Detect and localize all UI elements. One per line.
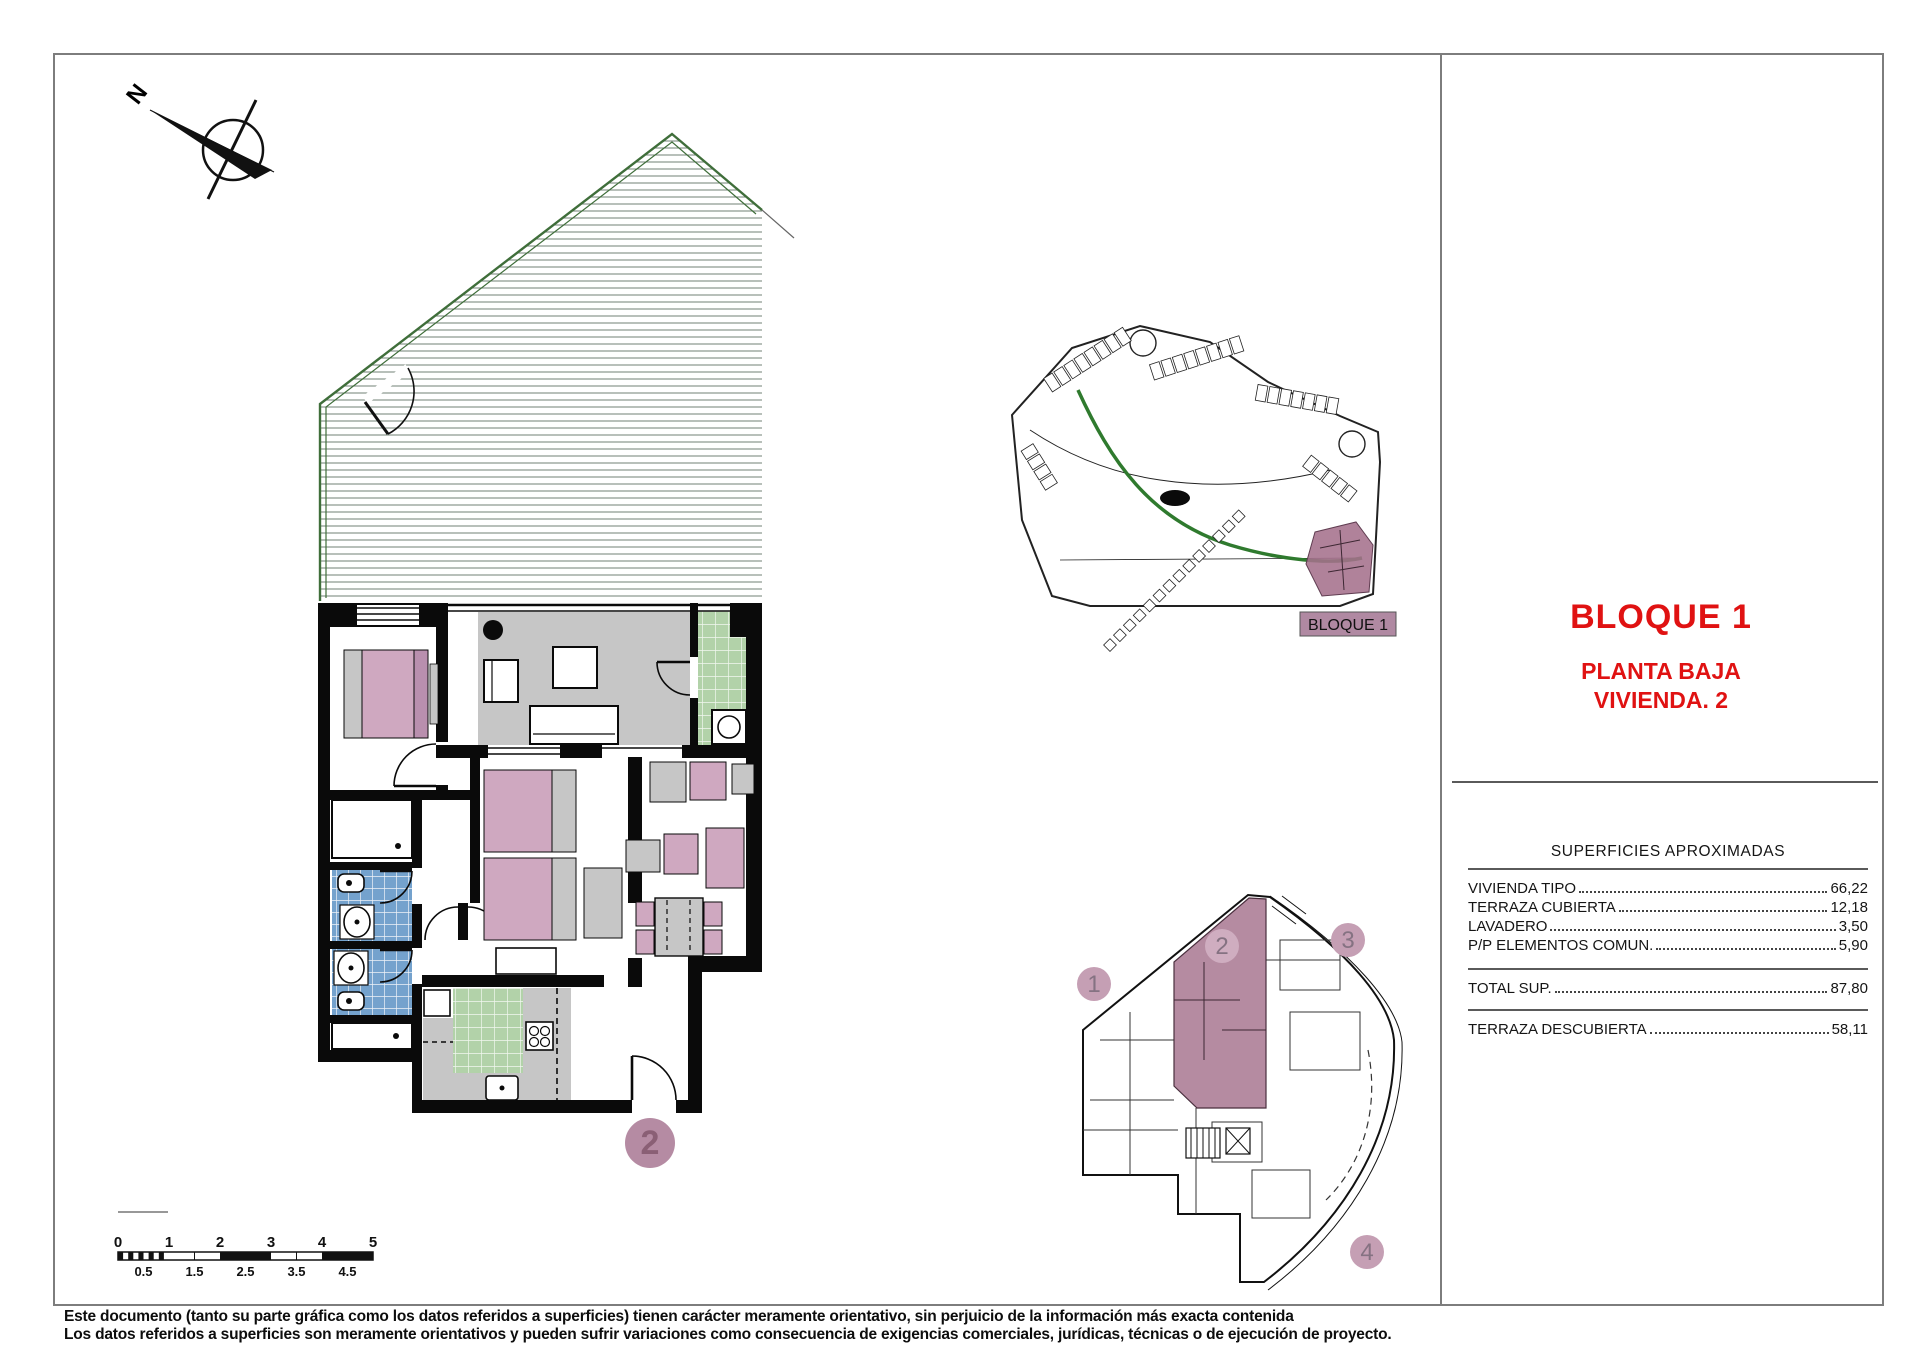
floor-label: PLANTA BAJA [1446, 658, 1876, 685]
dot-leader [1550, 929, 1835, 931]
table-total-row: TOTAL SUP. 87,80 [1468, 980, 1868, 999]
table-row: LAVADERO 3,50 [1468, 918, 1868, 937]
table-row: P/P ELEMENTOS COMUN. 5,90 [1468, 937, 1868, 956]
site-plan: BLOQUE 1 [1012, 326, 1396, 651]
key-plan-unit-2: 2 [1215, 933, 1228, 960]
key-plan-unit-1: 1 [1087, 971, 1100, 998]
scale-tick-3: 3 [267, 1234, 275, 1251]
row-label: VIVIENDA TIPO [1468, 880, 1576, 897]
table-row: VIVIENDA TIPO 66,22 [1468, 880, 1868, 899]
row-value: 12,18 [1830, 899, 1868, 916]
terrace-uncovered [320, 134, 794, 601]
row-value: 87,80 [1830, 980, 1868, 997]
scale-tick-15: 1.5 [185, 1264, 203, 1279]
table-uncovered-row: TERRAZA DESCUBIERTA 58,11 [1468, 1021, 1868, 1040]
table-row: TERRAZA CUBIERTA 12,18 [1468, 899, 1868, 918]
row-value: 66,22 [1830, 880, 1868, 897]
north-label: N [121, 79, 153, 109]
row-value: 3,50 [1839, 918, 1868, 935]
scale-tick-1: 1 [165, 1234, 173, 1251]
dot-leader [1555, 991, 1828, 993]
disclaimer-line-1: Este documento (tanto su parte gráfica c… [64, 1308, 1874, 1326]
disclaimer: Este documento (tanto su parte gráfica c… [64, 1308, 1874, 1344]
row-label: LAVADERO [1468, 918, 1547, 935]
surfaces-table: SUPERFICIES APROXIMADAS VIVIENDA TIPO 66… [1468, 843, 1868, 1040]
row-label: TERRAZA DESCUBIERTA [1468, 1021, 1647, 1038]
scale-tick-35: 3.5 [287, 1264, 305, 1279]
row-label: P/P ELEMENTOS COMUN. [1468, 937, 1653, 954]
dot-leader [1579, 891, 1827, 893]
key-plan-unit-4: 4 [1360, 1239, 1373, 1266]
disclaimer-line-2: Los datos referidos a superficies son me… [64, 1326, 1874, 1344]
scale-tick-45: 4.5 [338, 1264, 356, 1279]
scale-tick-05: 0.5 [134, 1264, 152, 1279]
scale-tick-5: 5 [369, 1234, 377, 1251]
unit-badge-number: 2 [641, 1124, 660, 1162]
site-plan-block-label: BLOQUE 1 [1308, 617, 1388, 634]
table-rule [1468, 968, 1868, 970]
scale-tick-25: 2.5 [236, 1264, 254, 1279]
dot-leader [1656, 948, 1835, 950]
plan-sheet: N [0, 0, 1920, 1352]
title-rule [1452, 781, 1878, 783]
table-rule [1468, 1009, 1868, 1011]
scale-tick-4: 4 [318, 1234, 327, 1251]
page-title: BLOQUE 1 [1446, 598, 1876, 637]
unit-badge: 2 [625, 1118, 675, 1168]
key-plan: 1 2 3 4 [1077, 895, 1402, 1290]
dot-leader [1619, 910, 1828, 912]
row-label: TOTAL SUP. [1468, 980, 1552, 997]
scale-tick-0: 0 [114, 1234, 122, 1251]
surfaces-table-title: SUPERFICIES APROXIMADAS [1468, 843, 1868, 861]
north-arrow-icon: N [121, 79, 274, 199]
table-rule [1468, 868, 1868, 870]
row-label: TERRAZA CUBIERTA [1468, 899, 1616, 916]
key-plan-unit-3: 3 [1341, 927, 1354, 954]
scale-tick-2: 2 [216, 1234, 224, 1251]
scale-bar: 0 1 2 3 4 5 0.5 1.5 2.5 3.5 4.5 [114, 1212, 377, 1279]
unit-label: VIVIENDA. 2 [1446, 687, 1876, 714]
row-value: 58,11 [1832, 1021, 1868, 1038]
dot-leader [1650, 1032, 1829, 1034]
row-value: 5,90 [1839, 937, 1868, 954]
